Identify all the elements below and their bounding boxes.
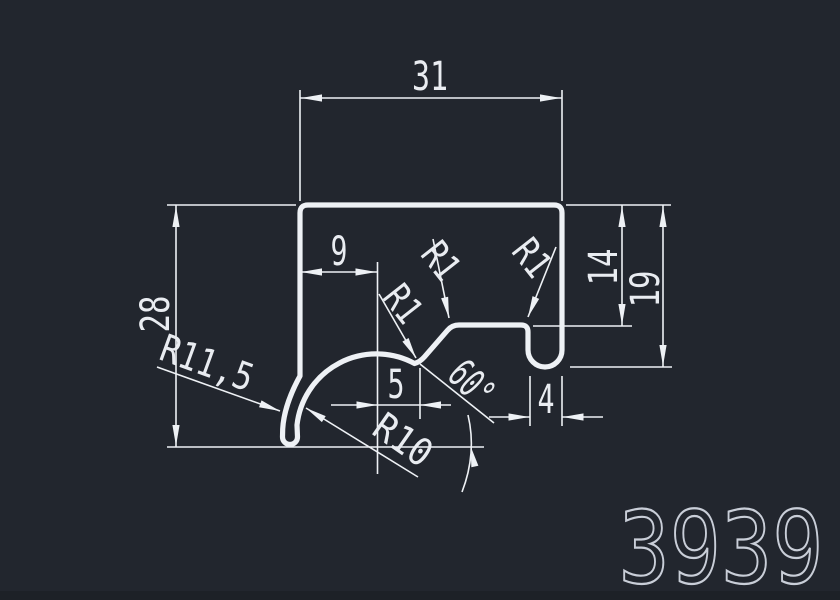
part-number: 3939	[619, 490, 824, 600]
cad-viewport: 31 28 9 5 60° R11,5 R10 R1 R1 R1 14 19 4…	[0, 0, 840, 600]
dim-label-31: 31	[412, 54, 448, 100]
technical-drawing: 31 28 9 5 60° R11,5 R10 R1 R1 R1 14 19 4…	[0, 0, 840, 600]
dim-label-14: 14	[581, 249, 627, 286]
dim-label-4: 4	[538, 377, 555, 423]
dim-label-9: 9	[331, 229, 348, 275]
dim-label-5: 5	[388, 362, 405, 408]
bottom-edge-shade	[0, 591, 840, 600]
dim-label-19: 19	[623, 271, 669, 308]
